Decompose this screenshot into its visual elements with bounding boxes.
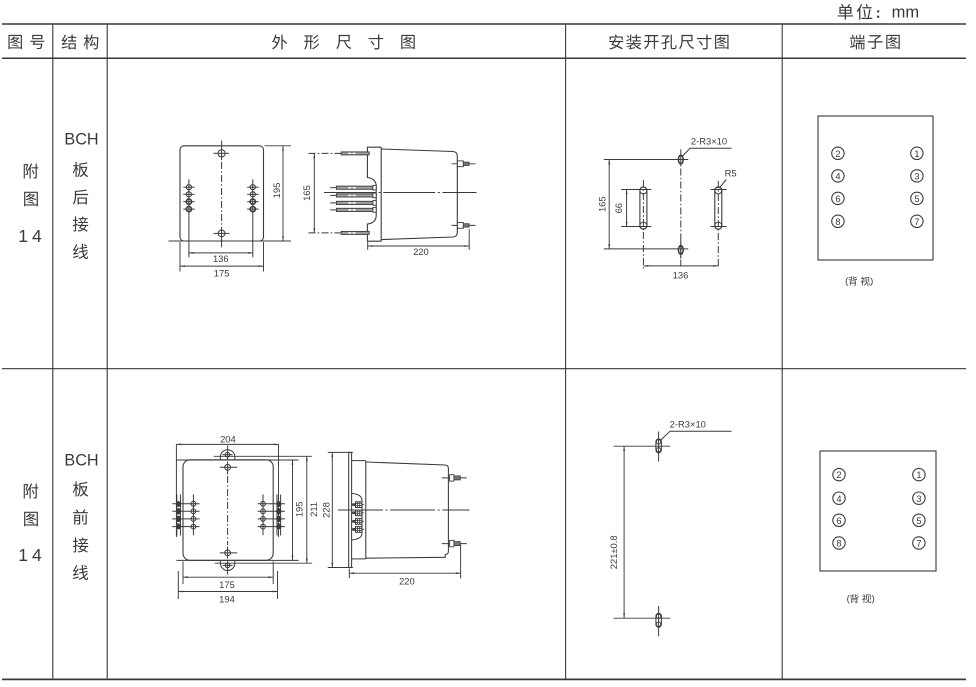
svg-text:BCH: BCH	[64, 130, 98, 148]
svg-text:2-R3×10: 2-R3×10	[670, 419, 706, 430]
svg-text:5: 5	[914, 194, 919, 204]
svg-text:4: 4	[836, 494, 841, 504]
svg-text:8: 8	[836, 539, 841, 549]
svg-text:6: 6	[835, 194, 840, 204]
svg-text:195: 195	[293, 502, 304, 518]
svg-text:mm: mm	[892, 3, 920, 21]
svg-text:7: 7	[916, 539, 921, 549]
svg-text:211: 211	[308, 502, 319, 517]
svg-text:66: 66	[613, 203, 624, 213]
svg-text:): )	[872, 593, 875, 604]
svg-text:2: 2	[836, 470, 841, 480]
svg-text:194: 194	[219, 593, 235, 604]
svg-text:3: 3	[916, 494, 921, 504]
svg-text:165: 165	[301, 185, 312, 201]
svg-text:BCH: BCH	[64, 451, 98, 469]
svg-text:R5: R5	[725, 168, 737, 179]
svg-text:8: 8	[835, 217, 840, 227]
svg-text:220: 220	[413, 246, 429, 257]
svg-text:1: 1	[916, 470, 921, 480]
svg-text:): )	[870, 276, 873, 287]
svg-text:6: 6	[836, 516, 841, 526]
svg-text:7: 7	[914, 217, 919, 227]
svg-text:220: 220	[399, 576, 415, 587]
svg-text:(: (	[845, 276, 849, 287]
svg-text:2: 2	[835, 149, 840, 159]
svg-text:195: 195	[271, 183, 282, 199]
svg-text:4: 4	[835, 171, 840, 181]
svg-text:2-R3×10: 2-R3×10	[691, 136, 727, 147]
svg-text:175: 175	[219, 579, 235, 590]
svg-text:1: 1	[914, 149, 919, 159]
svg-text:14: 14	[18, 226, 45, 246]
svg-text:14: 14	[18, 545, 45, 565]
svg-text:175: 175	[214, 267, 230, 278]
svg-text:5: 5	[916, 516, 921, 526]
svg-text:165: 165	[597, 196, 608, 212]
svg-text:204: 204	[220, 433, 236, 444]
svg-text:228: 228	[320, 502, 331, 518]
svg-text:136: 136	[673, 269, 689, 280]
svg-text:3: 3	[914, 171, 919, 181]
svg-text:221±0.8: 221±0.8	[608, 535, 619, 569]
svg-text:136: 136	[213, 253, 229, 264]
svg-text:(: (	[847, 593, 851, 604]
